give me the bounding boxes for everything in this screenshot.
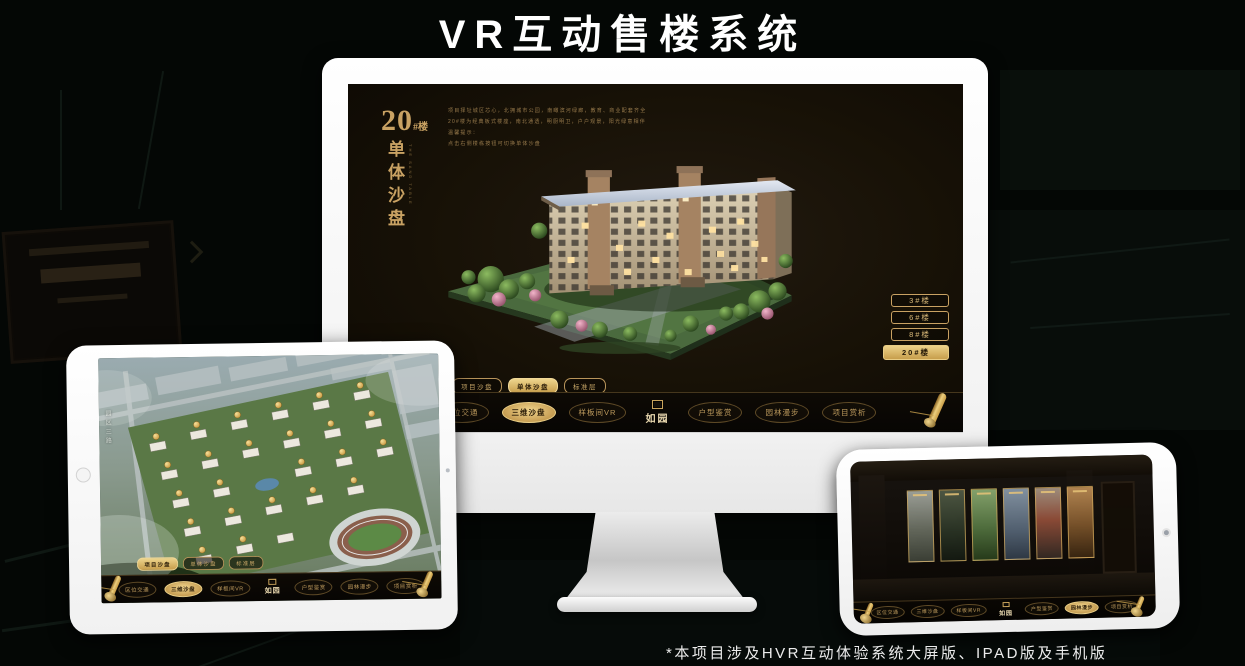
footnote: *本项目涉及HVR互动体验系统大屏版、IPAD版及手机版	[666, 642, 1107, 663]
gallery-panel[interactable]	[1003, 487, 1031, 560]
tablet-screen: 园区三路 项目沙盘 单体沙盘 标准层 区位交通 三维沙盘 样板间VR 如园 户型…	[98, 354, 441, 604]
phone-device: 区位交通 三维沙盘 样板间VR 如园 户型鉴赏 园林漫步 项目赏析	[836, 442, 1180, 636]
phone-screen: 区位交通 三维沙盘 样板间VR 如园 户型鉴赏 园林漫步 项目赏析	[850, 454, 1156, 623]
interior-door	[1101, 481, 1137, 574]
nav-item-location[interactable]: 区位交通	[118, 581, 156, 598]
nav-item-project-gallery[interactable]: 项目赏析	[822, 402, 876, 423]
floor-button-20[interactable]: 20#楼	[883, 345, 949, 360]
nav-item-showroom-vr[interactable]: 样板间VR	[569, 402, 627, 423]
tablet-camera-icon	[446, 468, 450, 472]
description-line: 点击右侧楼栋按钮可切换单体沙盘	[448, 139, 678, 150]
floor-button-6[interactable]: 6#楼	[891, 311, 949, 324]
background-buildings	[1000, 70, 1240, 190]
road-label: 园区三路	[103, 410, 113, 446]
floor-button-8[interactable]: 8#楼	[891, 328, 949, 341]
nav-item-garden-walk[interactable]: 园林漫步	[341, 578, 379, 595]
background-plaque	[2, 220, 183, 364]
page-title: VR互动售楼系统	[0, 2, 1245, 60]
nav-item-3d-sandbox[interactable]: 三维沙盘	[164, 580, 202, 597]
chevron-right-icon	[181, 241, 204, 264]
gallery-panel[interactable]	[1035, 487, 1063, 560]
tablet-home-button[interactable]	[76, 467, 91, 482]
building-subtitle: 单体沙盘	[382, 140, 407, 232]
gallery-panel[interactable]	[907, 490, 935, 563]
building-subtitle-en: THE SAND TABLE	[408, 144, 413, 206]
logo-seal-icon	[269, 579, 277, 585]
interior-pillar	[858, 475, 887, 596]
tablet-device: 园区三路 项目沙盘 单体沙盘 标准层 区位交通 三维沙盘 样板间VR 如园 户型…	[66, 340, 458, 634]
description-line: 20#楼为经典板式楼座，南北通透，明厨明卫，户户观景，阳光绿意相伴	[448, 117, 678, 128]
nav-item-showroom-vr[interactable]: 样板间VR	[210, 580, 251, 597]
brand-logo[interactable]: 如园	[645, 400, 669, 425]
floor-button-group: 3#楼 6#楼 8#楼 20#楼	[883, 294, 949, 360]
logo-text: 如园	[645, 410, 669, 425]
phone-camera-icon	[1164, 530, 1169, 535]
subtab-project-sandbox[interactable]: 项目沙盘	[137, 557, 178, 571]
nav-item-floorplans[interactable]: 户型鉴赏	[1025, 602, 1059, 616]
subtab-standard-floor[interactable]: 标准层	[229, 556, 264, 570]
description-line: 项目择址城区芯心，北拥城市公园，南瞰滨河绿廊，教育、商业配套齐全	[448, 106, 678, 117]
logo-text: 如园	[999, 608, 1013, 617]
nav-item-3d-sandbox[interactable]: 三维沙盘	[502, 402, 556, 423]
vr-gallery-panels	[907, 486, 1095, 563]
nav-item-garden-walk[interactable]: 园林漫步	[1065, 601, 1099, 615]
gallery-panel[interactable]	[939, 489, 967, 562]
subtab-single-sandbox[interactable]: 单体沙盘	[183, 557, 224, 571]
nav-item-floorplans[interactable]: 户型鉴赏	[295, 579, 333, 596]
logo-seal-icon	[1002, 602, 1009, 607]
floor-button-3[interactable]: 3#楼	[891, 294, 949, 307]
nav-item-floorplans[interactable]: 户型鉴赏	[688, 402, 742, 423]
brand-logo[interactable]: 如园	[265, 579, 281, 596]
gallery-panel[interactable]	[1067, 486, 1095, 559]
stage: VR互动售楼系统 20#楼 单体沙盘 THE SAND TABLE 项目择址城区…	[0, 0, 1245, 666]
logo-text: 如园	[265, 586, 281, 596]
interior-beam	[850, 454, 1152, 481]
description-line: 温馨提示：	[448, 128, 678, 139]
gallery-panel[interactable]	[971, 488, 999, 561]
monitor-stand-base	[557, 597, 757, 612]
nav-item-3d-sandbox[interactable]: 三维沙盘	[910, 605, 944, 619]
logo-seal-icon	[652, 400, 663, 409]
scroll-icon[interactable]	[1133, 596, 1145, 615]
building-description: 项目择址城区芯心，北拥城市公园，南瞰滨河绿廊，教育、商业配套齐全 20#楼为经典…	[448, 106, 678, 150]
nav-item-showroom-vr[interactable]: 样板间VR	[950, 604, 987, 618]
building-heading: 20#楼	[381, 104, 428, 138]
brand-logo[interactable]: 如园	[999, 602, 1013, 617]
nav-item-location[interactable]: 区位交通	[870, 606, 904, 620]
building-unit: #楼	[413, 122, 428, 133]
scroll-icon[interactable]	[926, 392, 947, 426]
tablet-subtabs: 项目沙盘 单体沙盘 标准层	[137, 556, 263, 571]
building-number: 20	[381, 104, 413, 137]
building-3d-model[interactable]	[436, 160, 804, 362]
tablet-bottom-nav: 区位交通 三维沙盘 样板间VR 如园 户型鉴赏 园林漫步 项目赏析	[101, 571, 441, 604]
nav-item-garden-walk[interactable]: 园林漫步	[755, 402, 809, 423]
